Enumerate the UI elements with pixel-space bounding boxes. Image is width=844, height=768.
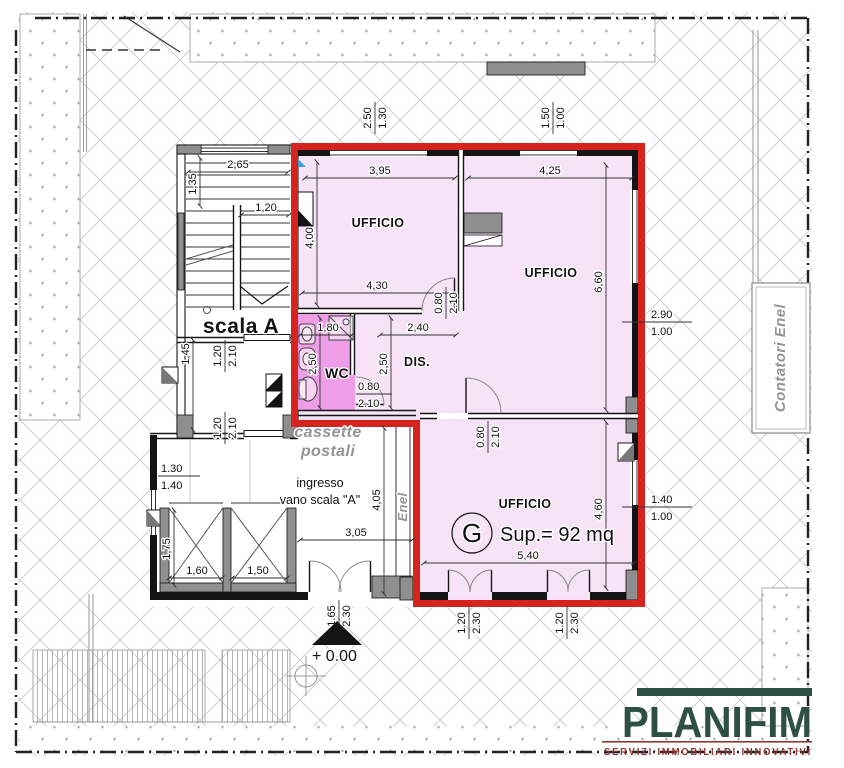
pilaster-stair-left [162,367,178,383]
radiator [464,213,502,233]
contatori-enel-label: Contatori Enel [772,304,789,413]
dim-2-40: 2,40 [407,322,428,334]
stipple-band-top [190,14,655,62]
dim-1-20: 1,20 [255,202,276,214]
stair-top-wall [177,145,298,154]
label-enel: Enel [395,492,410,521]
dim-value: 1.30 [161,463,182,475]
dim-value: 0.80 [358,381,379,393]
stipple-band-left [20,14,80,420]
dim-value: 2.50 [362,107,374,128]
dim-4-30: 4,30 [366,280,387,292]
dim-1-80: 1,80 [317,322,338,334]
dim-6-60: 6,60 [593,271,605,292]
pilaster [177,415,193,438]
dim-5-40: 5,40 [517,550,538,562]
dim-4-00: 4,00 [304,227,316,248]
dim-3-95: 3,95 [369,165,390,177]
label-ufficio-2: UFFICIO [525,266,578,280]
dim-value: 1.30 [377,107,389,128]
dim-2-65: 2,65 [227,159,248,171]
dim-value: 2.10 [227,345,239,366]
logo-underline [602,741,812,743]
label-cassette: cassette [294,424,361,441]
dim-value: 0.80 [475,426,487,447]
dim-value: 1.00 [651,326,672,338]
dim-value: 1.20 [554,612,566,633]
dim-value: 1.40 [651,494,672,506]
logo-bar [637,688,812,696]
dim-value: 1.20 [212,417,224,438]
logo-name: PLANIFIM [622,698,812,747]
dim-1-60: 1,60 [186,565,207,577]
label-vano-scala: vano scala "A" [280,493,360,507]
label-scala-a: scala A [203,315,279,338]
dim-value: 2.30 [471,612,483,633]
dim-1-50: 1,50 [247,565,268,577]
dim-2-50-b: 2,50 [378,353,390,374]
dim-1-35: 1,35 [187,173,199,194]
elevation-value: + 0.00 [312,648,357,665]
dim-value: 2.30 [569,612,581,633]
dim-value: 1.00 [555,107,567,128]
dim-value: 2.30 [341,605,353,626]
dim-1-45: 1,45 [180,343,192,364]
dim-3-05: 3,05 [345,527,366,539]
dim-value: 2.10 [490,426,502,447]
dim-1-75: 1,75 [161,538,173,559]
label-dis: DIS. [404,355,430,369]
label-ufficio-3: UFFICIO [499,497,552,511]
dim-value: 1.00 [651,511,672,523]
dim-4-05: 4,05 [371,489,383,510]
dim-value: 2.90 [651,309,672,321]
label-ufficio-1: UFFICIO [352,216,405,230]
dim-value: 1.20 [212,345,224,366]
dim-2-50-a: 2,50 [307,353,319,374]
floor-plan-page: Contatori Enel [0,0,844,768]
unit-letter: G [462,518,482,548]
floor-plan-drawing: Contatori Enel [0,0,844,768]
pilaster-triangles [266,374,282,407]
label-wc: WC [325,365,349,381]
dim-value: 2.10 [448,292,460,313]
label-postali: postali [300,443,356,460]
stair-left-wall [177,154,185,435]
unit-area: Sup.= 92 mq [500,524,614,546]
dim-value: 1.20 [456,612,468,633]
label-ingresso: ingresso [296,476,343,490]
dim-value: 2.10 [227,417,239,438]
dim-value: 1.40 [161,480,182,492]
dim-value: 1.50 [540,107,552,128]
planifim-logo: PLANIFIM SERVIZI IMMOBILIARI INNOVATIVI [602,688,812,758]
dim-4-25: 4,25 [539,165,560,177]
dim-value: 0.80 [433,292,445,313]
dim-value: 2.10 [358,398,379,410]
dim-4-60: 4,60 [593,498,605,519]
balcony-slab [487,62,585,75]
logo-tagline: SERVIZI IMMOBILIARI INNOVATIVI [604,746,812,758]
